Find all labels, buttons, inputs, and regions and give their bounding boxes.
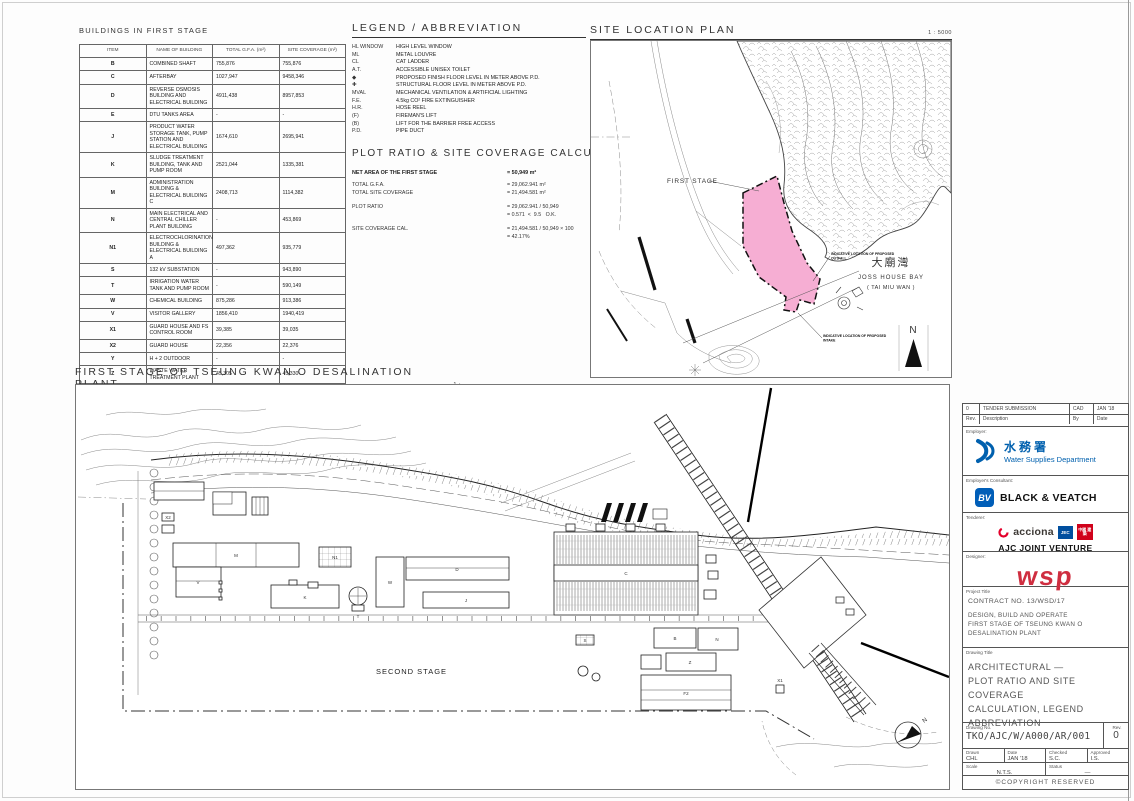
revision-header-row: Rev. Description By Date	[963, 414, 1128, 424]
cell-coverage: 943,890	[279, 264, 346, 277]
black-veatch-name: BLACK & VEATCH	[1000, 492, 1097, 504]
cell-coverage: 1114,382	[279, 177, 346, 208]
table-row: N MAIN ELECTRICAL AND CENTRAL CHILLER PL…	[80, 208, 346, 233]
cell-coverage: 22,376	[279, 339, 346, 352]
cell-gfa: 1027,947	[213, 71, 280, 84]
cell-gfa: -	[213, 264, 280, 277]
legend-symbol: A.T.	[352, 67, 396, 75]
status-value: —	[1049, 769, 1126, 776]
legend-meaning: ACCESSIBLE UNISEX TOILET	[396, 67, 586, 75]
svg-text:N: N	[909, 325, 916, 336]
cell-coverage: 755,876	[279, 58, 346, 71]
cell-coverage: 1940,419	[279, 308, 346, 321]
drawing-no-label: Drawing No.	[963, 723, 1103, 730]
svg-text:( TAI MIU WAN ): ( TAI MIU WAN )	[867, 285, 915, 291]
svg-text:大廟灣: 大廟灣	[872, 255, 911, 269]
legend-item: (F) FIREMAN'S LIFT	[352, 113, 586, 121]
contract-number: CONTRACT NO. 13/WSD/17	[968, 598, 1123, 605]
table-row: M ADMINISTRATION BUILDING & ELECTRICAL B…	[80, 177, 346, 208]
black-veatch-logo-icon: BV	[975, 488, 994, 507]
legend-item: H.R. HOSE REEL	[352, 105, 586, 113]
cell-gfa: -	[213, 208, 280, 233]
plot-ratio-line: TOTAL SITE COVERAGE = 21,494.581 m²	[352, 190, 612, 198]
main-plan-svg: X2 M V N1 K T W D J S C B N Z F2 X1 SECO…	[76, 385, 949, 789]
legend-list: HL WINDOW HIGH LEVEL WINDOW ML METAL LOU…	[352, 44, 586, 136]
legend-meaning: PIPE DUCT	[396, 128, 586, 136]
legend-meaning: PROPOSED FINISH FLOOR LEVEL IN METER ABO…	[396, 75, 586, 83]
svg-text:Z: Z	[689, 660, 692, 665]
employer-section: Employer: 水務署 Water Supplies Department	[963, 427, 1128, 476]
table-row: J PRODUCT WATER STORAGE TANK, PUMP STATI…	[80, 122, 346, 153]
drawing-title-section: Drawing Title ARCHITECTURAL — PLOT RATIO…	[963, 648, 1128, 723]
approved-value: I.S.	[1091, 755, 1127, 762]
svg-text:OUTFALL: OUTFALL	[831, 257, 847, 261]
site-location-svg: FIRST STAGE 大廟灣 JOSS HOUSE BAY ( TAI MIU…	[591, 41, 951, 377]
legend-meaning: HIGH LEVEL WINDOW	[396, 44, 586, 52]
cell-item: V	[80, 308, 147, 321]
cell-name: IRRIGATION WATER TANK AND PUMP ROOM	[146, 277, 213, 295]
legend-meaning: LIFT FOR THE BARRIER FREE ACCESS	[396, 121, 586, 129]
legend-meaning: STRUCTURAL FLOOR LEVEL IN METER ABOVE P.…	[396, 82, 586, 90]
legend-item: CL CAT LADDER	[352, 59, 586, 67]
title-block: 0 TENDER SUBMISSION CAD JAN '18 Rev. Des…	[962, 403, 1129, 790]
col-header-item: ITEM	[80, 45, 147, 58]
svg-text:INDICATIVE LOCATION OF PROPOSE: INDICATIVE LOCATION OF PROPOSED	[823, 334, 887, 338]
cell-coverage: -	[279, 109, 346, 122]
cell-gfa: 875,286	[213, 295, 280, 308]
cell-name: SLUDGE TREATMENT BUILDING, TANK AND PUMP…	[146, 153, 213, 178]
project-title-label: Project Title	[963, 587, 1128, 594]
svg-text:N1: N1	[332, 555, 338, 560]
copyright-note: ©COPYRIGHT RESERVED	[963, 776, 1128, 789]
svg-text:FIRST STAGE: FIRST STAGE	[667, 178, 718, 185]
legend-item: ◆ PROPOSED FINISH FLOOR LEVEL IN METER A…	[352, 75, 586, 83]
legend-meaning: 4.5kg CO² FIRE EXTINGUISHER	[396, 98, 586, 106]
svg-text:N: N	[922, 717, 929, 724]
survey-star	[689, 364, 701, 376]
cell-name: ADMINISTRATION BUILDING & ELECTRICAL BUI…	[146, 177, 213, 208]
site-location-map: FIRST STAGE 大廟灣 JOSS HOUSE BAY ( TAI MIU…	[590, 40, 952, 378]
svg-text:B: B	[673, 636, 676, 641]
legend-panel: LEGEND / ABBREVIATION HL WINDOW HIGH LEV…	[352, 22, 586, 136]
legend-meaning: FIREMAN'S LIFT	[396, 113, 586, 121]
second-stage-label: SECOND STAGE	[376, 667, 447, 676]
plot-ratio-line: PLOT RATIO = 29,062.941 / 50,949	[352, 204, 612, 212]
legend-meaning: HOSE REEL	[396, 105, 586, 113]
table-row: D REVERSE OSMOSIS BUILDING AND ELECTRICA…	[80, 84, 346, 109]
designer-section: Designer: wsp	[963, 552, 1128, 587]
legend-symbol: F.E.	[352, 98, 396, 106]
designer-label: Designer:	[963, 552, 1128, 559]
buildings-table-title: BUILDINGS IN FIRST STAGE	[79, 26, 208, 35]
svg-text:INDICATIVE LOCATION OF PROPOSE: INDICATIVE LOCATION OF PROPOSED	[831, 252, 895, 256]
table-row: X1 GUARD HOUSE AND FS CONTROL ROOM 39,38…	[80, 321, 346, 339]
cell-gfa: 22,356	[213, 339, 280, 352]
col-header-coverage: SITE COVERAGE (m²)	[279, 45, 346, 58]
drawing-title-line: CALCULATION, LEGEND	[968, 703, 1123, 717]
cell-name: ELECTROCHLORINATION BUILDING & ELECTRICA…	[146, 233, 213, 264]
buildings-table: ITEM NAME OF BUILDING TOTAL G.F.A. (m²) …	[79, 44, 346, 397]
col-header-name: NAME OF BUILDING	[146, 45, 213, 58]
cell-coverage: 9458,346	[279, 71, 346, 84]
cell-gfa: 4911,438	[213, 84, 280, 109]
svg-text:S: S	[583, 638, 586, 643]
cell-item: E	[80, 109, 147, 122]
cell-item: M	[80, 177, 147, 208]
cell-name: GUARD HOUSE AND FS CONTROL ROOM	[146, 321, 213, 339]
legend-meaning: CAT LADDER	[396, 59, 586, 67]
consultant-label: Employer's Consultant:	[963, 476, 1128, 483]
small-hill	[709, 346, 759, 375]
scale-status-row: ScaleN.T.S. Status—	[963, 763, 1128, 776]
cscec-logo-icon: 中國 建築	[1077, 524, 1093, 540]
pier-marks	[607, 237, 695, 343]
net-area-line: NET AREA OF THE FIRST STAGE = 50,949 m²	[352, 170, 612, 176]
wsd-logo-icon	[973, 438, 999, 464]
revision-row: 0 TENDER SUBMISSION CAD JAN '18	[963, 404, 1128, 414]
cell-coverage: 2695,941	[279, 122, 346, 153]
table-row: W CHEMICAL BUILDING 875,286 913,386	[80, 295, 346, 308]
drawn-value: CHL	[966, 755, 1002, 762]
cell-item: Y	[80, 353, 147, 366]
plot-ratio-line: SITE COVERAGE CAL. = 21,494.581 / 50,949…	[352, 226, 612, 234]
drawn-checked-row: DrawnCHL DateJAN '18 CheckedS.C. Approve…	[963, 749, 1128, 763]
cell-name: GUARD HOUSE	[146, 339, 213, 352]
table-row: V VISITOR GALLERY 1856,410 1940,419	[80, 308, 346, 321]
project-line: DESIGN, BUILD AND OPERATE	[968, 611, 1123, 620]
svg-text:INTAKE: INTAKE	[823, 339, 836, 343]
svg-text:T: T	[357, 614, 360, 619]
svg-text:M: M	[234, 553, 238, 558]
acciona-logo-icon	[998, 527, 1009, 538]
site-location-header: SITE LOCATION PLAN 1 : 5000	[590, 24, 952, 40]
cell-coverage: 8957,853	[279, 84, 346, 109]
drawing-title-line: PLOT RATIO AND SITE COVERAGE	[968, 675, 1123, 703]
cell-coverage: 453,869	[279, 208, 346, 233]
project-line: DESALINATION PLANT	[968, 629, 1123, 638]
drawing-title-line: ARCHITECTURAL —	[968, 661, 1123, 675]
cell-gfa: 1674,610	[213, 122, 280, 153]
table-row: Y H + 2 OUTDOOR - -	[80, 353, 346, 366]
legend-symbol: CL	[352, 59, 396, 67]
table-row: N1 ELECTROCHLORINATION BUILDING & ELECTR…	[80, 233, 346, 264]
intake-callout: INDICATIVE LOCATION OF PROPOSED INTAKE	[798, 313, 887, 343]
plot-ratio-title: PLOT RATIO & SITE COVERAGE CALCULATION:	[352, 148, 612, 162]
cell-gfa: 2521,044	[213, 153, 280, 178]
cell-gfa: 755,876	[213, 58, 280, 71]
cell-item: B	[80, 58, 147, 71]
checked-value: S.C.	[1049, 755, 1085, 762]
rev-value: 0	[1104, 730, 1128, 741]
legend-item: A.T. ACCESSIBLE UNISEX TOILET	[352, 67, 586, 75]
cell-gfa: -	[213, 109, 280, 122]
svg-text:N: N	[715, 637, 718, 642]
date-value: JAN '18	[1008, 755, 1044, 762]
table-row: B COMBINED SHAFT 755,876 755,876	[80, 58, 346, 71]
table-row: T IRRIGATION WATER TANK AND PUMP ROOM - …	[80, 277, 346, 295]
col-header-gfa: TOTAL G.F.A. (m²)	[213, 45, 280, 58]
cell-coverage: 39,035	[279, 321, 346, 339]
rev-label: Rev.	[1104, 723, 1128, 730]
legend-item: P.D. PIPE DUCT	[352, 128, 586, 136]
svg-text:V: V	[196, 580, 199, 585]
cell-coverage: 913,386	[279, 295, 346, 308]
svg-text:X2: X2	[165, 515, 171, 520]
cell-gfa: -	[213, 277, 280, 295]
project-line: FIRST STAGE OF TSEUNG KWAN O	[968, 620, 1123, 629]
cell-item: S	[80, 264, 147, 277]
cell-coverage: 935,779	[279, 233, 346, 264]
svg-text:J: J	[465, 598, 467, 603]
temple-marks	[836, 287, 863, 310]
legend-meaning: METAL LOUVRE	[396, 52, 586, 60]
table-row: X2 GUARD HOUSE 22,356 22,376	[80, 339, 346, 352]
acciona-name: acciona	[1013, 526, 1054, 538]
site-location-title: SITE LOCATION PLAN	[590, 24, 736, 36]
table-row: S 132 kV SUBSTATION - 943,890	[80, 264, 346, 277]
plot-ratio-lines: TOTAL G.F.A. = 29,062.941 m² TOTAL SITE …	[352, 182, 612, 242]
tenderer-label: Tenderer:	[963, 513, 1128, 520]
svg-text:JOSS HOUSE BAY: JOSS HOUSE BAY	[858, 275, 924, 281]
legend-item: F.E. 4.5kg CO² FIRE EXTINGUISHER	[352, 98, 586, 106]
legend-symbol: (F)	[352, 113, 396, 121]
cell-name: H + 2 OUTDOOR	[146, 353, 213, 366]
employer-label: Employer:	[963, 427, 1128, 434]
table-row: E DTU TANKS AREA - -	[80, 109, 346, 122]
jec-logo-icon: JEC	[1058, 526, 1073, 539]
cell-item: K	[80, 153, 147, 178]
svg-text:X1: X1	[777, 678, 783, 683]
legend-item: (B) LIFT FOR THE BARRIER FREE ACCESS	[352, 121, 586, 129]
svg-text:K: K	[303, 595, 306, 600]
legend-title: LEGEND / ABBREVIATION	[352, 22, 586, 38]
cell-name: REVERSE OSMOSIS BUILDING AND ELECTRICAL …	[146, 84, 213, 109]
cell-item: X2	[80, 339, 147, 352]
site-location-scale: 1 : 5000	[928, 30, 952, 36]
cell-name: CHEMICAL BUILDING	[146, 295, 213, 308]
cell-name: PRODUCT WATER STORAGE TANK, PUMP STATION…	[146, 122, 213, 153]
north-arrow-icon: N	[899, 325, 928, 371]
wsd-name-cn: 水務署	[1004, 438, 1096, 455]
legend-symbol: ◆	[352, 75, 396, 83]
access-road	[138, 615, 776, 622]
plot-ratio-line: = 42.17%	[352, 234, 612, 242]
cell-gfa: 497,362	[213, 233, 280, 264]
cell-coverage: 1335,381	[279, 153, 346, 178]
revision-table: 0 TENDER SUBMISSION CAD JAN '18 Rev. Des…	[963, 404, 1128, 427]
cell-item: J	[80, 122, 147, 153]
table-row: C AFTERBAY 1027,947 9458,346	[80, 71, 346, 84]
project-title-section: Project Title CONTRACT NO. 13/WSD/17 DES…	[963, 587, 1128, 648]
drawing-title-label: Drawing Title	[963, 648, 1128, 655]
first-stage-callout: FIRST STAGE	[667, 178, 759, 191]
legend-item: HL WINDOW HIGH LEVEL WINDOW	[352, 44, 586, 52]
consultant-section: Employer's Consultant: BV BLACK & VEATCH	[963, 476, 1128, 513]
cell-name: AFTERBAY	[146, 71, 213, 84]
cell-name: MAIN ELECTRICAL AND CENTRAL CHILLER PLAN…	[146, 208, 213, 233]
reclamation-lines	[591, 41, 741, 363]
plot-ratio-line: TOTAL G.F.A. = 29,062.941 m²	[352, 182, 612, 190]
drawing-number: TKO/AJC/W/A000/AR/001	[963, 730, 1103, 744]
buildings-table-header-row: ITEM NAME OF BUILDING TOTAL G.F.A. (m²) …	[80, 45, 346, 58]
cell-item: D	[80, 84, 147, 109]
cell-coverage: 590,149	[279, 277, 346, 295]
cell-gfa: 2408,713	[213, 177, 280, 208]
cell-name: COMBINED SHAFT	[146, 58, 213, 71]
cell-name: 132 kV SUBSTATION	[146, 264, 213, 277]
cell-item: N	[80, 208, 147, 233]
legend-item: ✚ STRUCTURAL FLOOR LEVEL IN METER ABOVE …	[352, 82, 586, 90]
cell-item: T	[80, 277, 147, 295]
legend-symbol: ML	[352, 52, 396, 60]
plot-ratio-line: = 0.571 < 9.5 O.K.	[352, 212, 612, 220]
svg-text:F2: F2	[683, 691, 689, 696]
drawing-number-section: Drawing No. TKO/AJC/W/A000/AR/001 Rev. 0	[963, 723, 1128, 749]
cell-item: X1	[80, 321, 147, 339]
cell-item: C	[80, 71, 147, 84]
legend-symbol: (B)	[352, 121, 396, 129]
legend-item: ML METAL LOUVRE	[352, 52, 586, 60]
legend-symbol: H.R.	[352, 105, 396, 113]
building-outlines	[154, 482, 784, 710]
tenderer-section: Tenderer: acciona JEC 中國 建築 AJC JOINT VE…	[963, 513, 1128, 552]
cell-name: DTU TANKS AREA	[146, 109, 213, 122]
cell-coverage: -	[279, 353, 346, 366]
cell-name: VISITOR GALLERY	[146, 308, 213, 321]
plot-ratio-panel: PLOT RATIO & SITE COVERAGE CALCULATION: …	[352, 148, 612, 242]
legend-item: MVAL MECHANICAL VENTILATION & ARTIFICIAL…	[352, 90, 586, 98]
cell-gfa: 1856,410	[213, 308, 280, 321]
legend-symbol: ✚	[352, 82, 396, 90]
legend-symbol: HL WINDOW	[352, 44, 396, 52]
legend-symbol: P.D.	[352, 128, 396, 136]
cell-gfa: -	[213, 353, 280, 366]
cell-item: N1	[80, 233, 147, 264]
main-plan-drawing: X2 M V N1 K T W D J S C B N Z F2 X1 SECO…	[75, 384, 950, 790]
wsd-name-en: Water Supplies Department	[1004, 455, 1096, 464]
legend-meaning: MECHANICAL VENTILATION & ARTIFICIAL LIGH…	[396, 90, 586, 98]
cell-item: W	[80, 295, 147, 308]
table-row: K SLUDGE TREATMENT BUILDING, TANK AND PU…	[80, 153, 346, 178]
legend-symbol: MVAL	[352, 90, 396, 98]
scale-value: N.T.S.	[966, 769, 1043, 776]
cell-gfa: 39,385	[213, 321, 280, 339]
